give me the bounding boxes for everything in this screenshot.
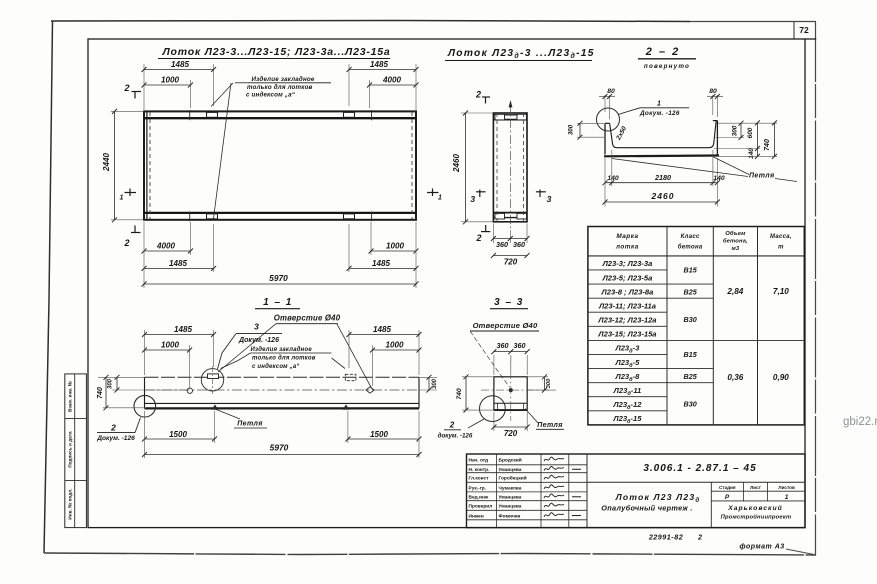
- svg-text:Петля: Петля: [537, 422, 563, 429]
- svg-text:Докум. -126: Докум. -126: [639, 110, 680, 117]
- svg-text:0,36: 0,36: [727, 373, 743, 382]
- svg-text:Л23-5; Л23-5а: Л23-5; Л23-5а: [602, 273, 653, 282]
- svg-text:Стадия: Стадия: [719, 485, 736, 490]
- svg-text:3: 3: [470, 194, 475, 204]
- svg-text:300: 300: [546, 378, 552, 388]
- svg-text:2: 2: [475, 90, 481, 100]
- svg-text:140: 140: [607, 175, 619, 182]
- svg-text:300: 300: [432, 378, 438, 389]
- svg-text:3: 3: [254, 322, 259, 332]
- svg-text:1000: 1000: [161, 76, 180, 85]
- svg-text:1: 1: [657, 101, 661, 108]
- svg-text:360: 360: [496, 240, 508, 249]
- svg-text:Чумакова: Чумакова: [499, 485, 522, 491]
- svg-text:300: 300: [108, 378, 114, 389]
- svg-text:22991-82: 22991-82: [648, 533, 683, 542]
- svg-text:Проверил: Проверил: [469, 504, 493, 510]
- svg-text:В30: В30: [684, 400, 697, 409]
- svg-text:Горобецкий: Горобецкий: [499, 475, 527, 482]
- svg-text:1500: 1500: [169, 430, 187, 439]
- svg-text:5970: 5970: [270, 443, 289, 453]
- svg-text:4000: 4000: [382, 76, 402, 85]
- svg-text:740: 740: [456, 388, 463, 400]
- svg-text:т: т: [778, 245, 784, 251]
- svg-text:Докум. -126: Докум. -126: [238, 337, 279, 344]
- svg-text:740: 740: [97, 387, 104, 399]
- svg-text:80: 80: [709, 88, 717, 95]
- svg-text:Уманцева: Уманцева: [499, 495, 522, 501]
- svg-text:с индексом „а“: с индексом „а“: [252, 364, 300, 370]
- svg-text:Харьковский: Харьковский: [727, 504, 783, 512]
- svg-text:2: 2: [123, 238, 129, 248]
- svg-text:Лист: Лист: [750, 485, 762, 490]
- svg-text:с индексом „а“: с индексом „а“: [246, 92, 296, 99]
- svg-text:Масса,: Масса,: [770, 234, 792, 240]
- svg-text:300: 300: [731, 125, 738, 136]
- svg-text:2: 2: [697, 533, 702, 542]
- svg-text:Л23д-5: Л23д-5: [614, 358, 640, 369]
- svg-text:В25: В25: [684, 287, 698, 296]
- svg-text:повернуто: повернуто: [644, 63, 690, 70]
- svg-text:1: 1: [785, 494, 789, 501]
- svg-text:2180: 2180: [654, 173, 671, 182]
- svg-text:1485: 1485: [174, 325, 193, 334]
- svg-text:только для лотков: только для лотков: [247, 84, 313, 91]
- svg-text:2: 2: [475, 233, 481, 243]
- svg-text:бетона: бетона: [678, 244, 703, 251]
- svg-text:Л23д-3: Л23д-3: [614, 344, 640, 355]
- svg-text:Л23-3; Л23-3а: Л23-3; Л23-3а: [602, 259, 653, 268]
- svg-text:Изделия закладное: Изделия закладное: [251, 347, 313, 353]
- svg-text:1000: 1000: [161, 341, 180, 350]
- svg-text:2 – 2: 2 – 2: [645, 46, 680, 58]
- svg-text:Промстройниипроект: Промстройниипроект: [721, 513, 792, 520]
- svg-text:2: 2: [449, 421, 455, 430]
- svg-text:Подпись и дата: Подпись и дата: [68, 431, 73, 468]
- svg-text:только для лотков: только для лотков: [252, 356, 316, 362]
- svg-text:Объем: Объем: [725, 230, 746, 237]
- svg-text:80: 80: [607, 88, 615, 95]
- svg-text:0,90: 0,90: [773, 373, 789, 382]
- svg-text:Уманцева: Уманцева: [499, 504, 522, 510]
- svg-text:1000: 1000: [385, 341, 404, 350]
- svg-text:Фомичев: Фомичев: [499, 513, 521, 519]
- svg-text:1485: 1485: [169, 259, 188, 268]
- svg-text:Класс: Класс: [681, 234, 700, 240]
- svg-text:Докум. -126: Докум. -126: [96, 435, 135, 442]
- svg-text:Опалубочный чертеж .: Опалубочный чертеж .: [601, 504, 692, 513]
- svg-text:1485: 1485: [370, 60, 389, 69]
- svg-text:В15: В15: [684, 266, 698, 275]
- svg-text:Л23-8 ; Л23-8а: Л23-8 ; Л23-8а: [601, 287, 654, 296]
- svg-text:2460: 2460: [651, 191, 675, 201]
- svg-text:2,84: 2,84: [726, 287, 743, 296]
- svg-text:В30: В30: [684, 315, 697, 324]
- svg-text:лотка: лотка: [615, 244, 639, 251]
- svg-text:Н. контр.: Н. контр.: [469, 467, 490, 473]
- svg-text:Л23д-8: Л23д-8: [614, 372, 640, 383]
- svg-text:Л23-12; Л23-12а: Л23-12; Л23-12а: [597, 316, 656, 325]
- svg-text:Листов: Листов: [778, 485, 795, 490]
- svg-text:Лоток Л23 Л23д: Лоток Л23 Л23д: [615, 492, 701, 504]
- svg-text:2440: 2440: [102, 153, 111, 173]
- svg-text:докум. -126: докум. -126: [438, 433, 473, 440]
- svg-text:1: 1: [120, 195, 124, 202]
- svg-text:2: 2: [123, 83, 129, 93]
- svg-text:2460: 2460: [452, 154, 461, 174]
- svg-text:140: 140: [713, 175, 725, 182]
- svg-text:7,10: 7,10: [773, 287, 789, 296]
- svg-text:5970: 5970: [269, 273, 288, 283]
- svg-text:Взам. инв. №: Взам. инв. №: [68, 381, 73, 412]
- svg-text:Вед.инж: Вед.инж: [469, 495, 489, 501]
- svg-text:3.006.1 - 2.87.1 – 45: 3.006.1 - 2.87.1 – 45: [643, 463, 756, 474]
- svg-text:1500: 1500: [370, 430, 388, 439]
- svg-text:Инв. № подл.: Инв. № подл.: [68, 488, 73, 519]
- svg-text:Петля: Петля: [749, 173, 775, 180]
- svg-text:3: 3: [547, 194, 552, 204]
- svg-text:формат А3: формат А3: [739, 544, 784, 551]
- svg-text:Л23-15; Л23-15а: Л23-15; Л23-15а: [597, 330, 656, 339]
- svg-text:Марка: Марка: [616, 233, 638, 240]
- svg-text:140: 140: [748, 148, 755, 159]
- svg-text:В15: В15: [684, 350, 698, 359]
- svg-text:360: 360: [513, 240, 525, 249]
- svg-text:72: 72: [799, 25, 809, 35]
- svg-text:1485: 1485: [373, 325, 392, 334]
- svg-text:600: 600: [747, 127, 754, 138]
- svg-text:2: 2: [110, 423, 116, 433]
- svg-text:4000: 4000: [156, 242, 176, 251]
- svg-text:1485: 1485: [171, 60, 190, 69]
- svg-text:...Л23-15; Л23-3а...Л23-15а: ...Л23-15; Л23-3а...Л23-15а: [237, 46, 391, 58]
- svg-text:1000: 1000: [386, 242, 405, 251]
- svg-text:Изделие закладное: Изделие закладное: [252, 76, 315, 83]
- svg-text:Л23д-15: Л23д-15: [612, 414, 642, 425]
- svg-text:бетона,: бетона,: [723, 238, 748, 245]
- svg-text:1 – 1: 1 – 1: [263, 297, 293, 308]
- svg-text:Л23д-11: Л23д-11: [613, 386, 642, 397]
- svg-text:Нач. отд: Нач. отд: [469, 458, 489, 464]
- svg-text:Гл.конст: Гл.конст: [469, 476, 490, 482]
- svg-text:Л23-11; Л23-11а: Л23-11; Л23-11а: [598, 301, 656, 310]
- svg-text:Уманцева: Уманцева: [499, 467, 522, 473]
- svg-text:Инжен: Инжен: [469, 513, 484, 519]
- svg-text:В25: В25: [684, 372, 698, 381]
- svg-text:м3: м3: [731, 246, 739, 252]
- svg-text:Р: Р: [725, 494, 730, 501]
- svg-text:360: 360: [497, 341, 509, 350]
- svg-text:Л23д-12: Л23д-12: [612, 400, 642, 411]
- svg-text:Отверстие Ø40: Отверстие Ø40: [274, 314, 341, 323]
- svg-text:300: 300: [568, 124, 575, 135]
- svg-text:Отверстие Ø40: Отверстие Ø40: [473, 321, 538, 330]
- svg-text:1485: 1485: [372, 259, 391, 268]
- svg-text:1: 1: [438, 195, 442, 202]
- svg-text:720: 720: [504, 258, 518, 267]
- svg-text:Лоток Л23д-3 ...Л23д-15: Лоток Л23д-3 ...Л23д-15: [447, 48, 595, 60]
- svg-text:Рук.-гр.: Рук.-гр.: [469, 485, 486, 491]
- svg-text:Петля: Петля: [237, 421, 263, 428]
- svg-text:360: 360: [514, 341, 526, 350]
- svg-text:720: 720: [504, 429, 518, 438]
- svg-text:Бродский: Бродский: [499, 457, 522, 464]
- svg-text:gbi22.ru: gbi22.ru: [843, 416, 877, 428]
- svg-text:3 – 3: 3 – 3: [494, 297, 524, 308]
- svg-text:740: 740: [764, 139, 771, 151]
- svg-text:Лоток Л23-3: Лоток Л23-3: [161, 46, 237, 58]
